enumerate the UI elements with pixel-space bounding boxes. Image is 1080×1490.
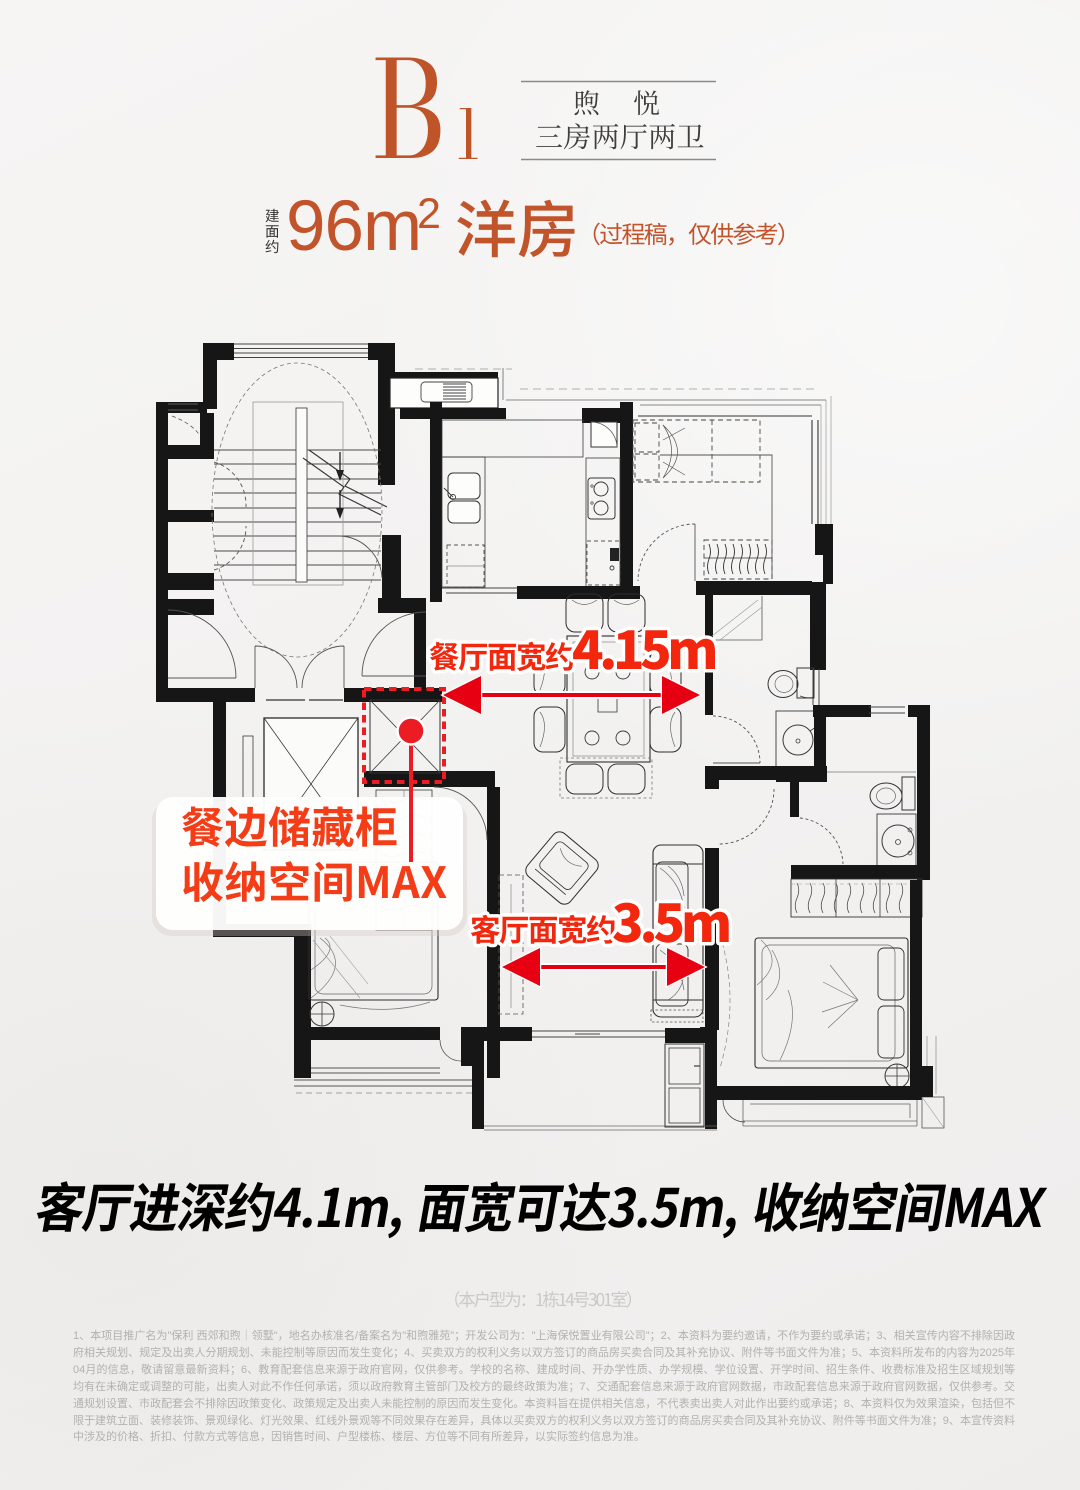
svg-text:96m: 96m	[286, 187, 421, 266]
svg-text:2: 2	[417, 190, 441, 238]
